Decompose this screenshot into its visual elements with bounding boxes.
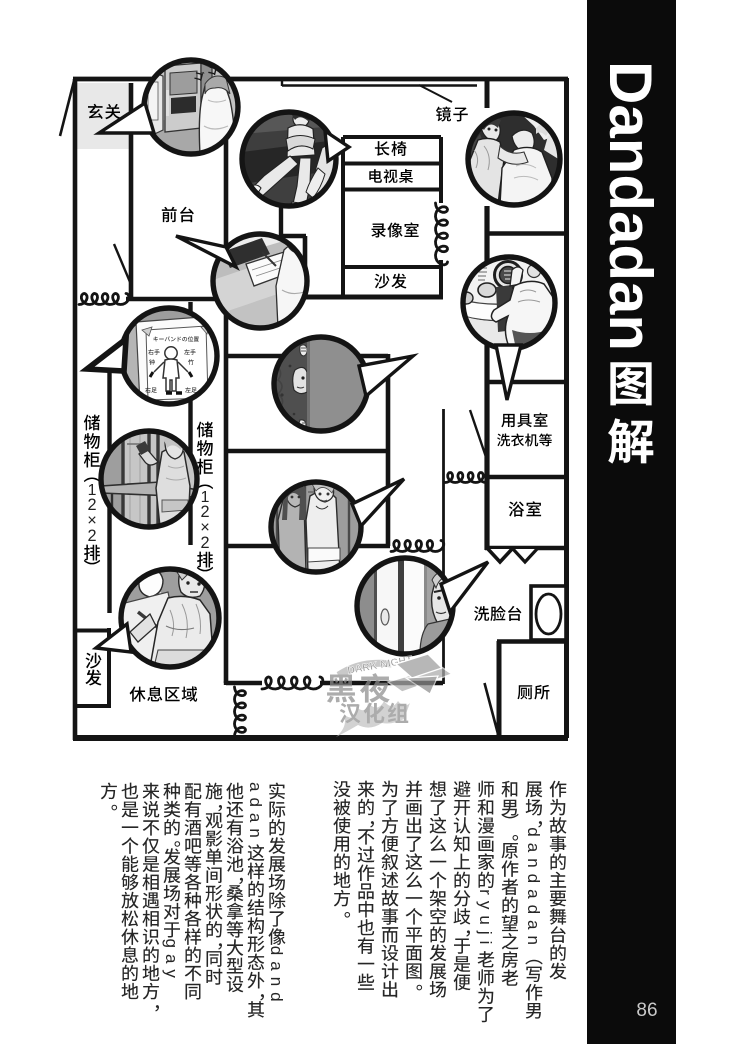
svg-text:2: 2 xyxy=(200,534,209,552)
svg-text:gay: gay xyxy=(162,939,181,984)
svg-text:ryuji: ryuji xyxy=(476,889,495,950)
svg-text:adan: adan xyxy=(246,782,265,844)
svg-text:Dandadan: Dandadan xyxy=(597,61,664,351)
svg-text:dand: dand xyxy=(267,946,286,1008)
svg-text:dandadan: dandadan xyxy=(524,827,543,951)
svg-text:86: 86 xyxy=(636,1000,657,1021)
svg-text:2: 2 xyxy=(87,527,96,545)
